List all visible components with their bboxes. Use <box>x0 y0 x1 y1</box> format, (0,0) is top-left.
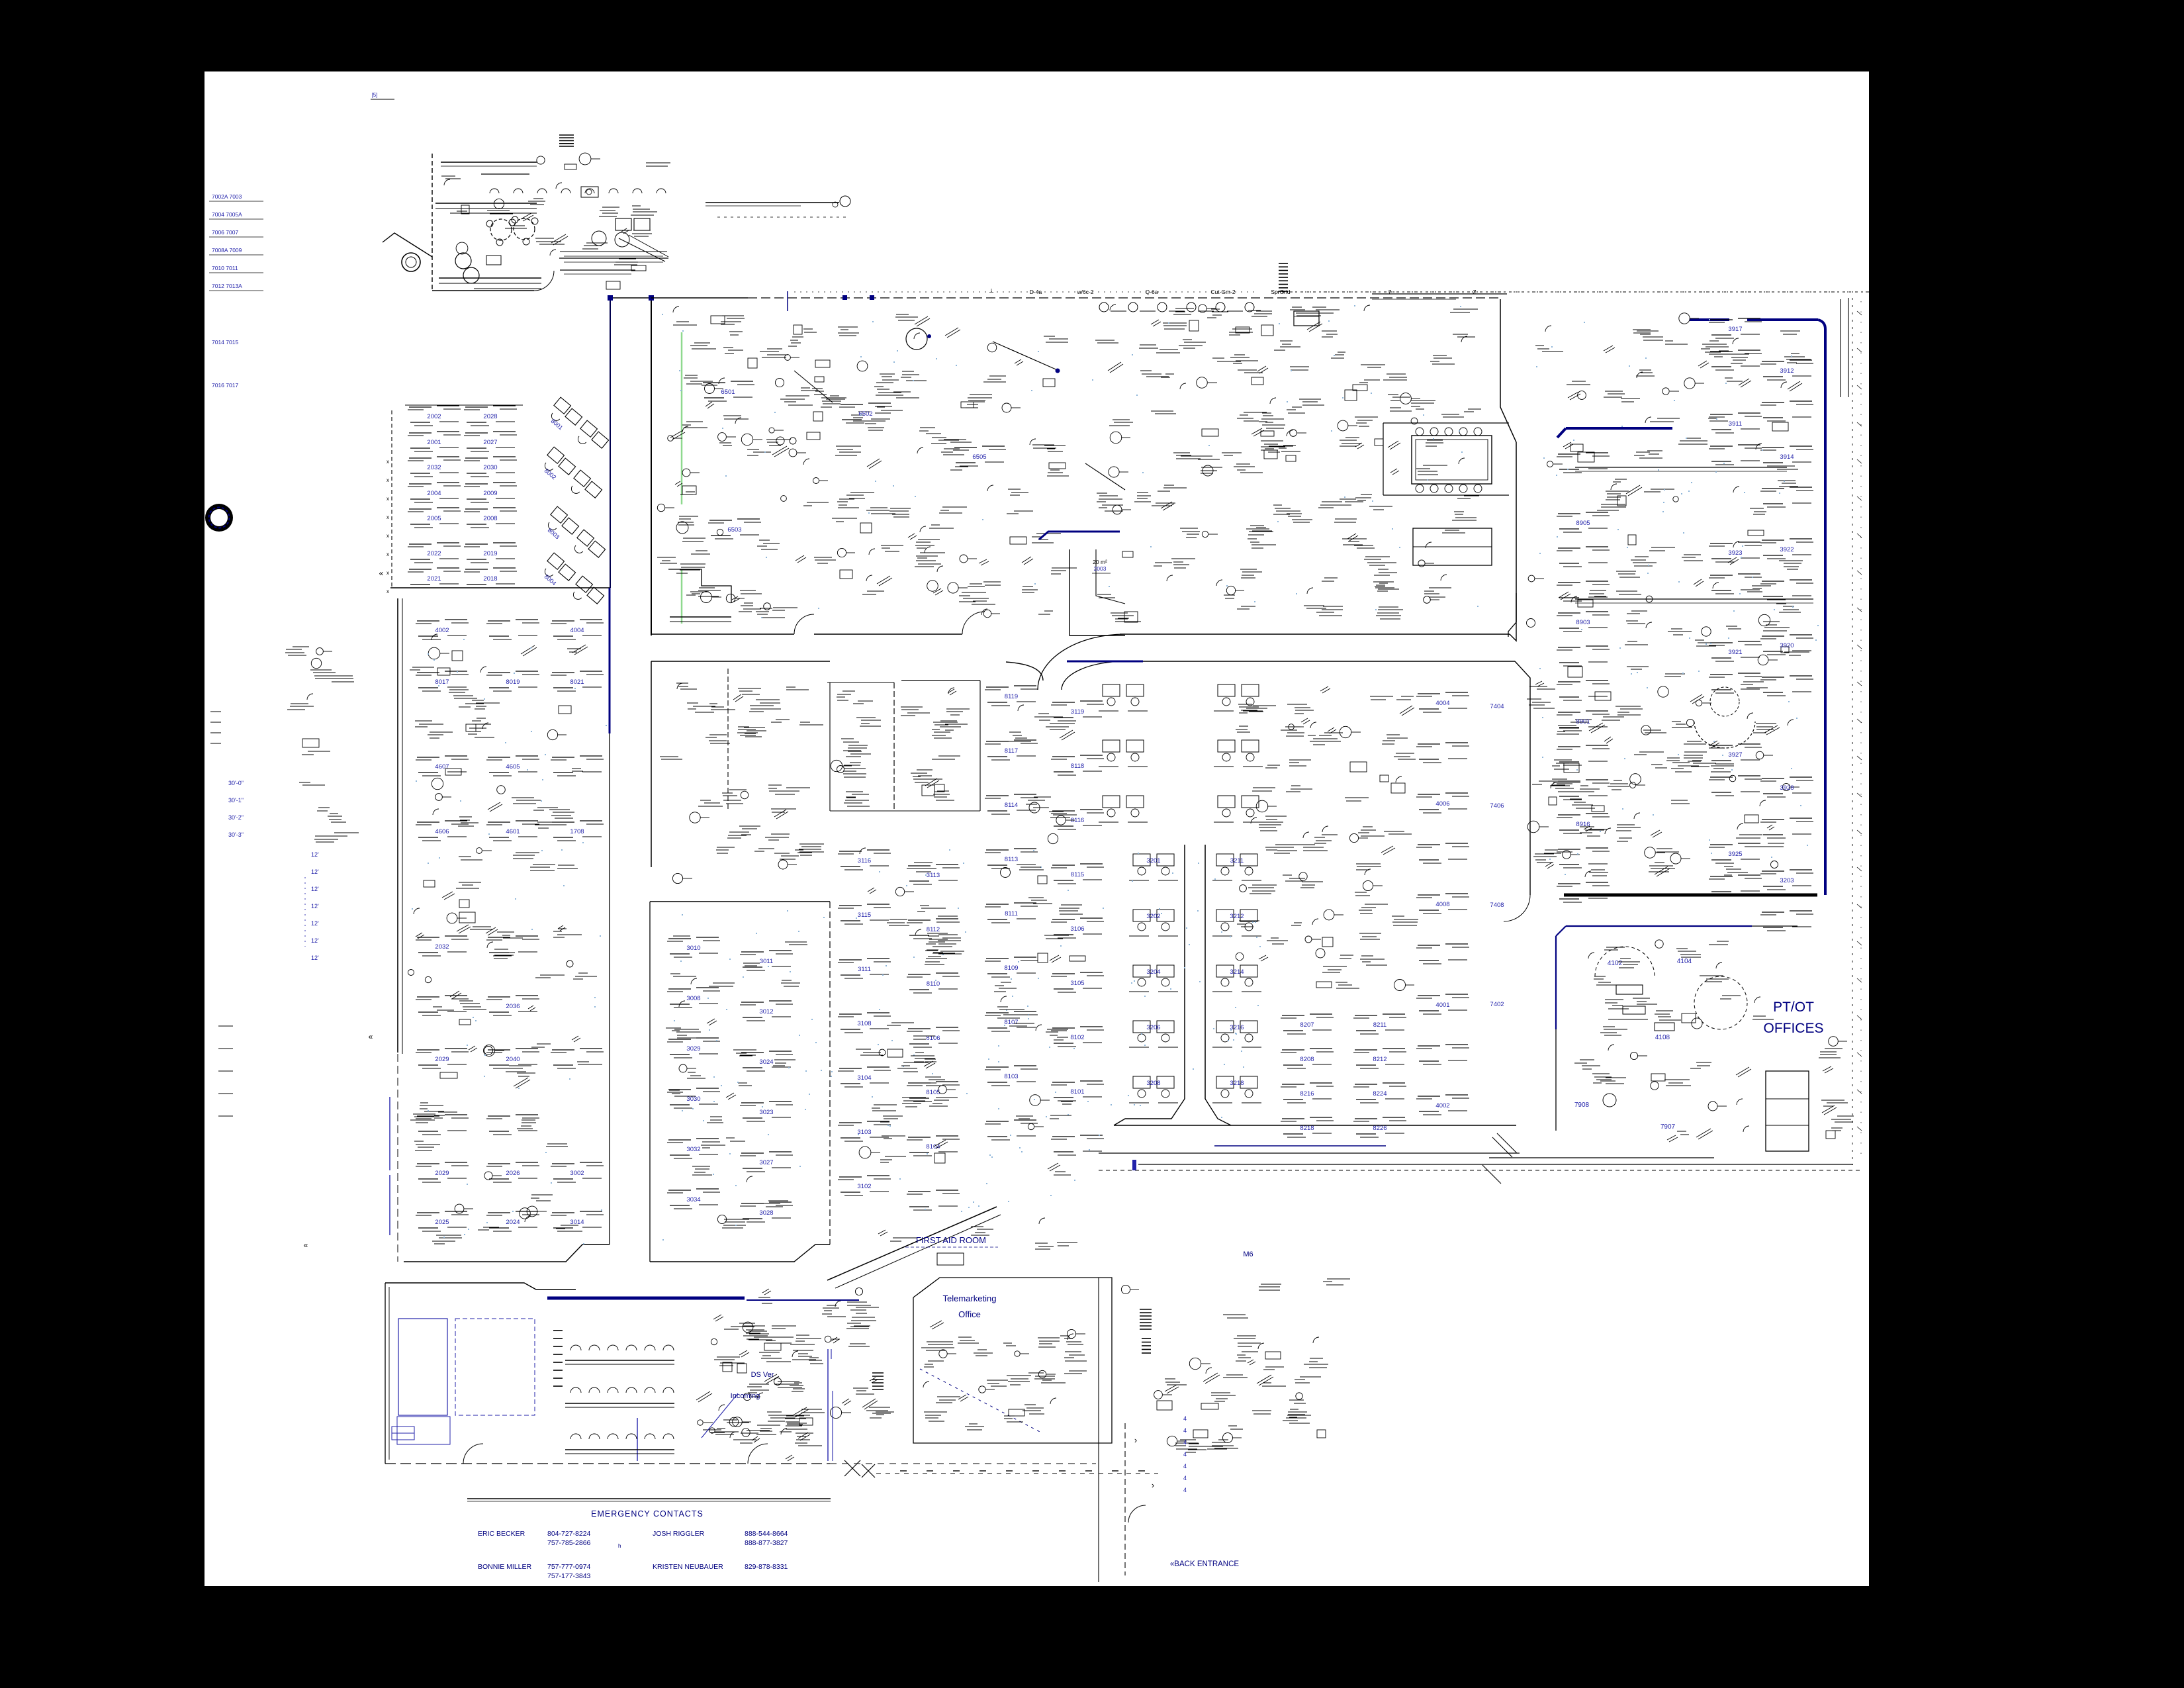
svg-text:4601: 4601 <box>506 828 520 835</box>
svg-text:2029: 2029 <box>435 1170 449 1177</box>
svg-text:2040: 2040 <box>506 1056 520 1063</box>
svg-text:7402: 7402 <box>1490 1001 1504 1008</box>
svg-text:2032: 2032 <box>435 943 449 951</box>
svg-text:x: x <box>387 514 389 520</box>
svg-text:2008: 2008 <box>483 515 497 522</box>
svg-text:3912: 3912 <box>1780 367 1794 375</box>
svg-text:8117: 8117 <box>1005 747 1018 755</box>
svg-text:Office: Office <box>958 1309 981 1319</box>
svg-text:3923: 3923 <box>1728 549 1742 557</box>
svg-text:8019: 8019 <box>506 679 520 686</box>
svg-text:M6: M6 <box>1243 1250 1253 1258</box>
svg-text:2036: 2036 <box>506 1003 520 1010</box>
svg-text:x: x <box>387 551 389 557</box>
svg-text:x: x <box>387 459 389 465</box>
svg-text:3111: 3111 <box>858 966 871 973</box>
svg-text:888-544-8664: 888-544-8664 <box>745 1530 788 1538</box>
svg-text:2004: 2004 <box>427 490 441 497</box>
svg-text:3106: 3106 <box>1070 925 1084 933</box>
svg-text:JOSH RIGGLER: JOSH RIGGLER <box>653 1530 705 1538</box>
svg-text:3027: 3027 <box>759 1159 773 1166</box>
svg-text:8114: 8114 <box>1005 802 1018 809</box>
svg-text:2018: 2018 <box>483 575 497 583</box>
svg-text:7406: 7406 <box>1490 802 1504 810</box>
svg-text:3212: 3212 <box>1230 913 1244 920</box>
svg-text:3011: 3011 <box>760 958 773 965</box>
svg-text:6501: 6501 <box>721 389 735 396</box>
svg-text:3119: 3119 <box>1071 708 1084 716</box>
svg-text:3208: 3208 <box>1146 1080 1160 1087</box>
svg-text:3204: 3204 <box>1146 968 1160 976</box>
svg-text:4102: 4102 <box>1608 960 1623 967</box>
svg-text:8109: 8109 <box>1004 964 1018 972</box>
svg-text:7908: 7908 <box>1574 1102 1590 1109</box>
svg-text:3108: 3108 <box>857 1020 871 1027</box>
svg-text:x: x <box>387 588 389 594</box>
svg-text:3920: 3920 <box>1780 642 1794 649</box>
svg-text:30'-2": 30'-2" <box>228 814 244 821</box>
svg-text:2021: 2021 <box>427 575 441 583</box>
svg-text:3202: 3202 <box>1146 913 1160 920</box>
svg-text:4: 4 <box>1183 1427 1187 1434</box>
svg-text:2028: 2028 <box>483 413 497 420</box>
svg-text:x: x <box>387 496 389 502</box>
svg-text:2022: 2022 <box>427 550 441 557</box>
svg-text:4004: 4004 <box>1435 700 1449 707</box>
svg-text:«: « <box>369 1032 373 1041</box>
svg-text:12': 12' <box>311 851 319 858</box>
svg-text:3034: 3034 <box>686 1196 700 1203</box>
svg-text:x: x <box>387 570 389 576</box>
svg-text:D-4a: D-4a <box>1030 289 1042 295</box>
svg-text:[5]: [5] <box>372 92 378 98</box>
svg-text:12': 12' <box>311 920 319 927</box>
svg-text:8021: 8021 <box>570 679 584 686</box>
svg-text:4: 4 <box>1183 1475 1187 1481</box>
svg-text:30'-0": 30'-0" <box>228 780 244 786</box>
svg-text:7404: 7404 <box>1490 703 1504 710</box>
svg-text:3922: 3922 <box>1780 546 1794 553</box>
svg-text:12': 12' <box>311 955 319 961</box>
svg-text:829-878-8331: 829-878-8331 <box>745 1563 788 1571</box>
svg-text:2026: 2026 <box>506 1170 520 1177</box>
svg-text:3921: 3921 <box>1728 649 1742 656</box>
svg-text:3211: 3211 <box>1230 857 1244 865</box>
svg-text:3023: 3023 <box>759 1109 773 1116</box>
svg-text:›: › <box>1152 1480 1154 1490</box>
svg-text:3214: 3214 <box>1230 968 1244 976</box>
svg-text:30'-1": 30'-1" <box>228 797 244 804</box>
svg-text:3102: 3102 <box>857 1183 871 1190</box>
svg-text:12': 12' <box>311 937 319 944</box>
svg-text:w/6c-2: w/6c-2 <box>1076 289 1093 295</box>
svg-text:OFFICES: OFFICES <box>1763 1021 1823 1036</box>
svg-text:12': 12' <box>311 886 319 892</box>
svg-text:888-877-3827: 888-877-3827 <box>745 1539 788 1547</box>
svg-text:Telemarketing: Telemarketing <box>943 1293 997 1303</box>
svg-text:30'-3": 30'-3" <box>228 831 244 838</box>
svg-text:EMERGENCY CONTACTS: EMERGENCY CONTACTS <box>591 1509 704 1519</box>
svg-text:2030: 2030 <box>483 464 497 471</box>
svg-text:8017: 8017 <box>435 679 449 686</box>
svg-text:12': 12' <box>311 903 319 910</box>
svg-text:4: 4 <box>1183 1463 1187 1470</box>
svg-text:4: 4 <box>1183 1451 1187 1458</box>
svg-text:3917: 3917 <box>1728 326 1742 333</box>
svg-text:8901: 8901 <box>1576 718 1590 726</box>
svg-text:4: 4 <box>1183 1415 1187 1422</box>
svg-text:8113: 8113 <box>1005 856 1018 863</box>
svg-text:757-177-3843: 757-177-3843 <box>547 1572 591 1580</box>
svg-text:ERIC BECKER: ERIC BECKER <box>478 1530 525 1538</box>
svg-text:›: › <box>1134 1435 1137 1445</box>
svg-text:2002: 2002 <box>427 413 441 420</box>
svg-text:8224: 8224 <box>1373 1090 1387 1098</box>
svg-text:4607: 4607 <box>435 763 449 771</box>
svg-text:3008: 3008 <box>686 995 700 1002</box>
svg-text:2025: 2025 <box>435 1219 449 1226</box>
svg-text:3030: 3030 <box>686 1096 700 1103</box>
svg-text:8102: 8102 <box>1070 1034 1084 1041</box>
svg-text:2027: 2027 <box>483 439 497 446</box>
svg-text:4: 4 <box>1183 1487 1187 1493</box>
svg-text:3928: 3928 <box>1780 784 1794 792</box>
svg-text:3012: 3012 <box>759 1008 773 1015</box>
svg-text:8226: 8226 <box>1373 1125 1387 1132</box>
svg-text:757-777-0974: 757-777-0974 <box>547 1563 591 1571</box>
svg-text:8101: 8101 <box>1070 1088 1084 1096</box>
svg-text:7014 7015: 7014 7015 <box>212 339 238 346</box>
svg-text:«: « <box>304 1241 308 1250</box>
svg-text:2005: 2005 <box>427 515 441 522</box>
svg-text:2029: 2029 <box>435 1056 449 1063</box>
svg-text:7010 7011: 7010 7011 <box>212 265 238 271</box>
svg-text:8903: 8903 <box>1576 619 1590 626</box>
svg-text:8211: 8211 <box>1373 1021 1387 1029</box>
svg-text:757-785-2866: 757-785-2866 <box>547 1539 591 1547</box>
svg-text:3914: 3914 <box>1780 453 1794 461</box>
svg-text:3002: 3002 <box>570 1170 584 1177</box>
svg-text:x: x <box>387 533 389 539</box>
svg-text:3010: 3010 <box>686 945 700 952</box>
svg-text:6502: 6502 <box>858 410 872 418</box>
svg-text:4004: 4004 <box>570 627 584 634</box>
svg-text:DS Ver: DS Ver <box>751 1371 774 1379</box>
svg-text:3201: 3201 <box>1146 857 1160 865</box>
svg-text:8116: 8116 <box>1071 817 1084 824</box>
svg-text:x: x <box>387 477 389 483</box>
svg-text:7016 7017: 7016 7017 <box>212 382 238 389</box>
svg-text:1708: 1708 <box>570 828 584 835</box>
svg-text:PT/OT: PT/OT <box>1773 1000 1814 1015</box>
svg-text:2001: 2001 <box>427 439 441 446</box>
svg-text:12': 12' <box>311 868 319 875</box>
svg-text:7002A 7003: 7002A 7003 <box>212 193 242 200</box>
svg-text:8103: 8103 <box>1004 1073 1018 1080</box>
svg-text:3925: 3925 <box>1728 851 1742 858</box>
svg-text:2009: 2009 <box>483 490 497 497</box>
svg-text:8212: 8212 <box>1373 1056 1387 1063</box>
svg-text:3024: 3024 <box>759 1058 773 1066</box>
svg-text:4001: 4001 <box>1435 1002 1449 1009</box>
svg-text:3911: 3911 <box>1729 420 1742 428</box>
svg-text:20 m²: 20 m² <box>1093 559 1107 565</box>
svg-text:8110: 8110 <box>927 980 940 988</box>
svg-text:4002: 4002 <box>435 627 449 634</box>
svg-text:3105: 3105 <box>1070 980 1084 987</box>
svg-text:Incoming: Incoming <box>731 1392 760 1400</box>
svg-text:3203: 3203 <box>1780 877 1794 884</box>
svg-text:4006: 4006 <box>1435 800 1449 808</box>
svg-text:«: « <box>379 569 384 578</box>
svg-text:8916: 8916 <box>1576 821 1590 828</box>
svg-text:7012 7013A: 7012 7013A <box>212 283 242 289</box>
svg-text:3014: 3014 <box>570 1219 584 1226</box>
svg-text:7907: 7907 <box>1661 1123 1676 1131</box>
svg-text:7006 7007: 7006 7007 <box>212 229 238 236</box>
svg-text:8119: 8119 <box>1005 693 1018 700</box>
svg-text:2003: 2003 <box>1094 565 1107 572</box>
svg-text:4: 4 <box>1183 1439 1187 1446</box>
svg-text:8905: 8905 <box>1576 520 1590 527</box>
svg-text:8208: 8208 <box>1300 1056 1314 1063</box>
svg-text:4108: 4108 <box>1655 1034 1670 1041</box>
svg-text:3206: 3206 <box>1146 1024 1160 1031</box>
svg-text:2019: 2019 <box>483 550 497 557</box>
svg-text:8216: 8216 <box>1300 1090 1314 1098</box>
svg-text:«BACK ENTRANCE: «BACK ENTRANCE <box>1170 1560 1239 1568</box>
svg-text:3115: 3115 <box>858 912 871 919</box>
svg-text:BONNIE MILLER: BONNIE MILLER <box>478 1563 532 1571</box>
svg-text:3028: 3028 <box>759 1209 773 1217</box>
svg-text:7004 7005A: 7004 7005A <box>212 211 242 218</box>
svg-text:FIRST AID ROOM: FIRST AID ROOM <box>916 1235 986 1245</box>
svg-text:8118: 8118 <box>1071 763 1084 770</box>
svg-text:3103: 3103 <box>857 1129 871 1136</box>
svg-text:8218: 8218 <box>1300 1125 1314 1132</box>
svg-text:4606: 4606 <box>435 828 449 835</box>
svg-text:3113: 3113 <box>927 872 940 879</box>
svg-text:4002: 4002 <box>1435 1102 1449 1109</box>
svg-text:7408: 7408 <box>1490 902 1504 909</box>
svg-text:8107: 8107 <box>1004 1019 1018 1026</box>
svg-text:8111: 8111 <box>1005 910 1018 917</box>
svg-text:2032: 2032 <box>427 464 441 471</box>
svg-text:4008: 4008 <box>1435 901 1449 908</box>
svg-text:8115: 8115 <box>1071 871 1084 878</box>
svg-text:804-727-8224: 804-727-8224 <box>547 1530 591 1538</box>
svg-text:h: h <box>618 1543 621 1549</box>
svg-text:4104: 4104 <box>1677 958 1692 965</box>
svg-text:8207: 8207 <box>1300 1021 1314 1029</box>
svg-text:7008A 7009: 7008A 7009 <box>212 247 242 254</box>
svg-text:6503: 6503 <box>727 526 741 534</box>
svg-text:4605: 4605 <box>506 763 520 771</box>
svg-text:3216: 3216 <box>1230 1024 1244 1031</box>
svg-text:KRISTEN NEUBAUER: KRISTEN NEUBAUER <box>653 1563 723 1571</box>
svg-text:3104: 3104 <box>857 1074 871 1082</box>
svg-text:3029: 3029 <box>686 1045 700 1053</box>
svg-text:3927: 3927 <box>1728 751 1742 759</box>
svg-text:3218: 3218 <box>1230 1080 1244 1087</box>
svg-text:3032: 3032 <box>686 1146 700 1153</box>
svg-text:8112: 8112 <box>927 926 940 933</box>
svg-text:6505: 6505 <box>972 453 986 461</box>
